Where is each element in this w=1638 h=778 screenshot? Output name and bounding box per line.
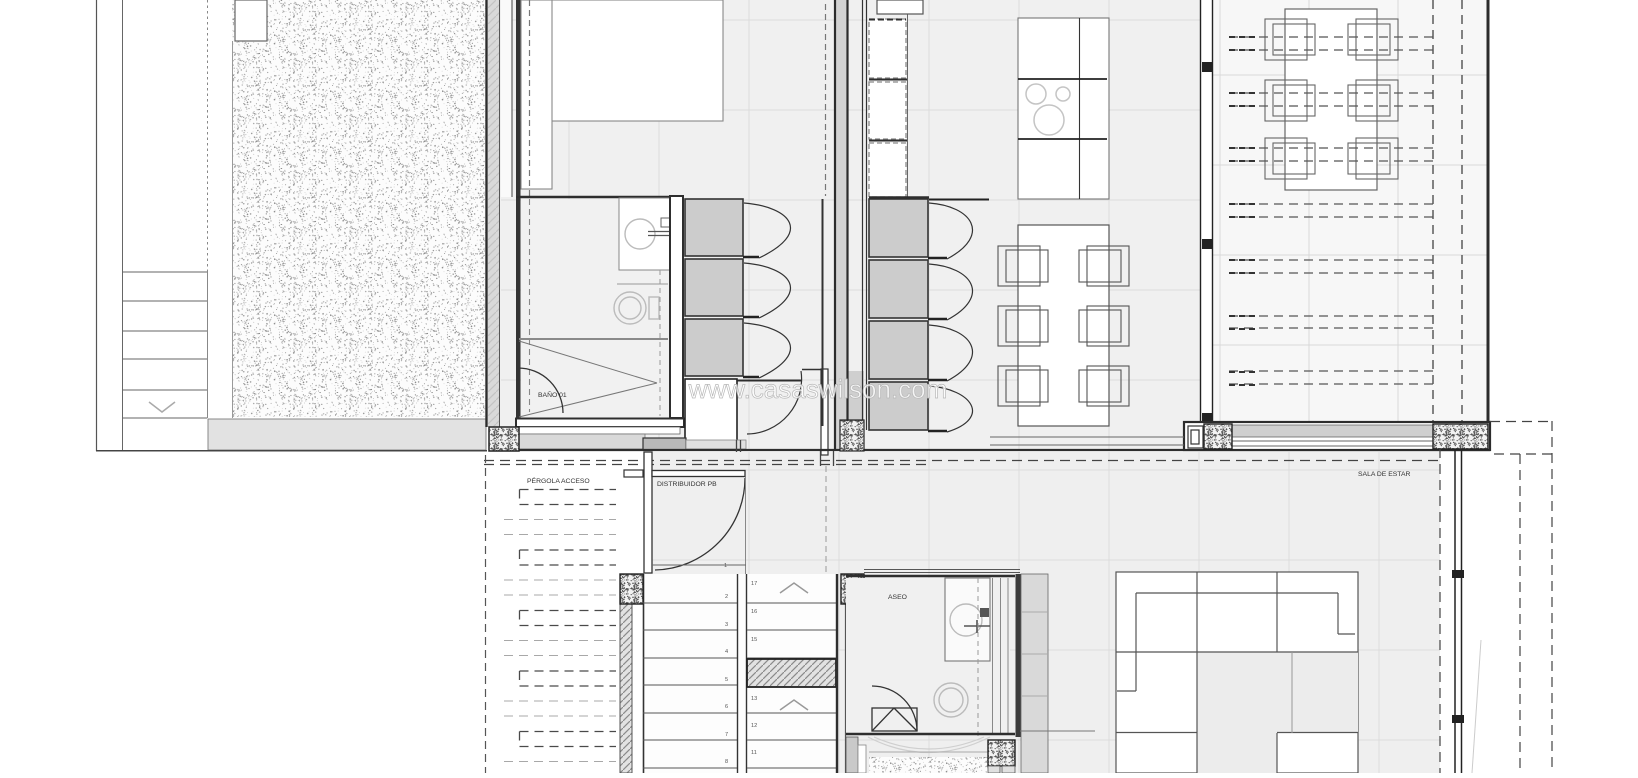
svg-text:15: 15 (751, 637, 757, 643)
svg-text:16: 16 (751, 609, 757, 615)
svg-text:3: 3 (725, 622, 728, 628)
svg-text:4: 4 (725, 649, 728, 655)
svg-text:DISTRIBUIDOR PB: DISTRIBUIDOR PB (657, 481, 717, 488)
svg-text:5: 5 (725, 677, 728, 683)
svg-text:7: 7 (725, 732, 728, 738)
svg-text:2: 2 (725, 594, 728, 600)
svg-text:11: 11 (751, 750, 757, 756)
svg-text:8: 8 (725, 759, 728, 765)
svg-text:12: 12 (751, 723, 757, 729)
svg-text:BAÑO 01: BAÑO 01 (538, 390, 567, 399)
svg-text:ASEO: ASEO (888, 594, 907, 601)
svg-text:SALA DE ESTAR: SALA DE ESTAR (1358, 471, 1410, 478)
svg-text:6: 6 (725, 704, 728, 710)
svg-text:1: 1 (724, 563, 727, 569)
svg-text:17: 17 (751, 581, 757, 587)
svg-text:13: 13 (751, 696, 757, 702)
svg-text:www.casaswilson.com: www.casaswilson.com (688, 374, 948, 404)
svg-text:PÉRGOLA ACCESO: PÉRGOLA ACCESO (527, 476, 590, 485)
